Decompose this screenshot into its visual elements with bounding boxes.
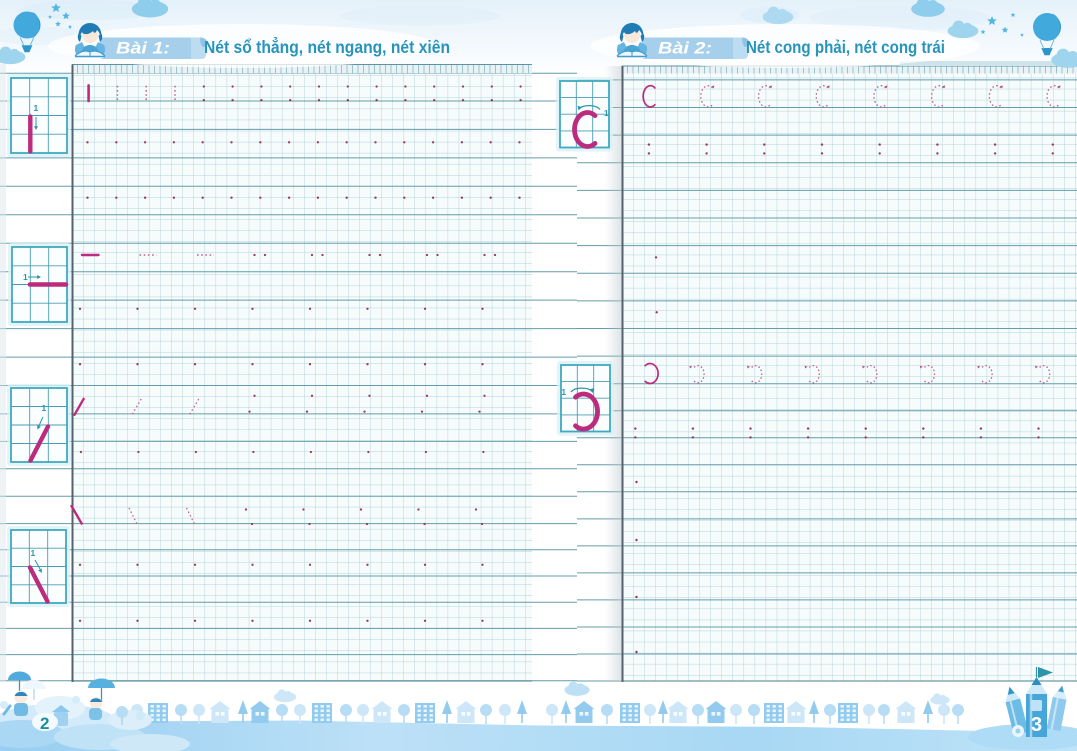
svg-text:1: 1 bbox=[562, 388, 567, 397]
svg-text:1: 1 bbox=[604, 109, 609, 118]
svg-text:1: 1 bbox=[34, 103, 39, 113]
svg-text:2: 2 bbox=[40, 714, 49, 733]
svg-text:Nét cong phải, nét cong trái: Nét cong phải, nét cong trái bbox=[746, 37, 945, 57]
svg-text:Bài 2:: Bài 2: bbox=[658, 40, 712, 58]
svg-text:3: 3 bbox=[1031, 714, 1042, 736]
svg-text:1: 1 bbox=[31, 548, 36, 558]
svg-text:Bài 1:: Bài 1: bbox=[116, 40, 170, 58]
svg-text:1: 1 bbox=[42, 403, 47, 413]
svg-text:Nét sổ thẳng, nét ngang, nét x: Nét sổ thẳng, nét ngang, nét xiên bbox=[204, 36, 450, 57]
svg-text:1: 1 bbox=[23, 272, 28, 282]
